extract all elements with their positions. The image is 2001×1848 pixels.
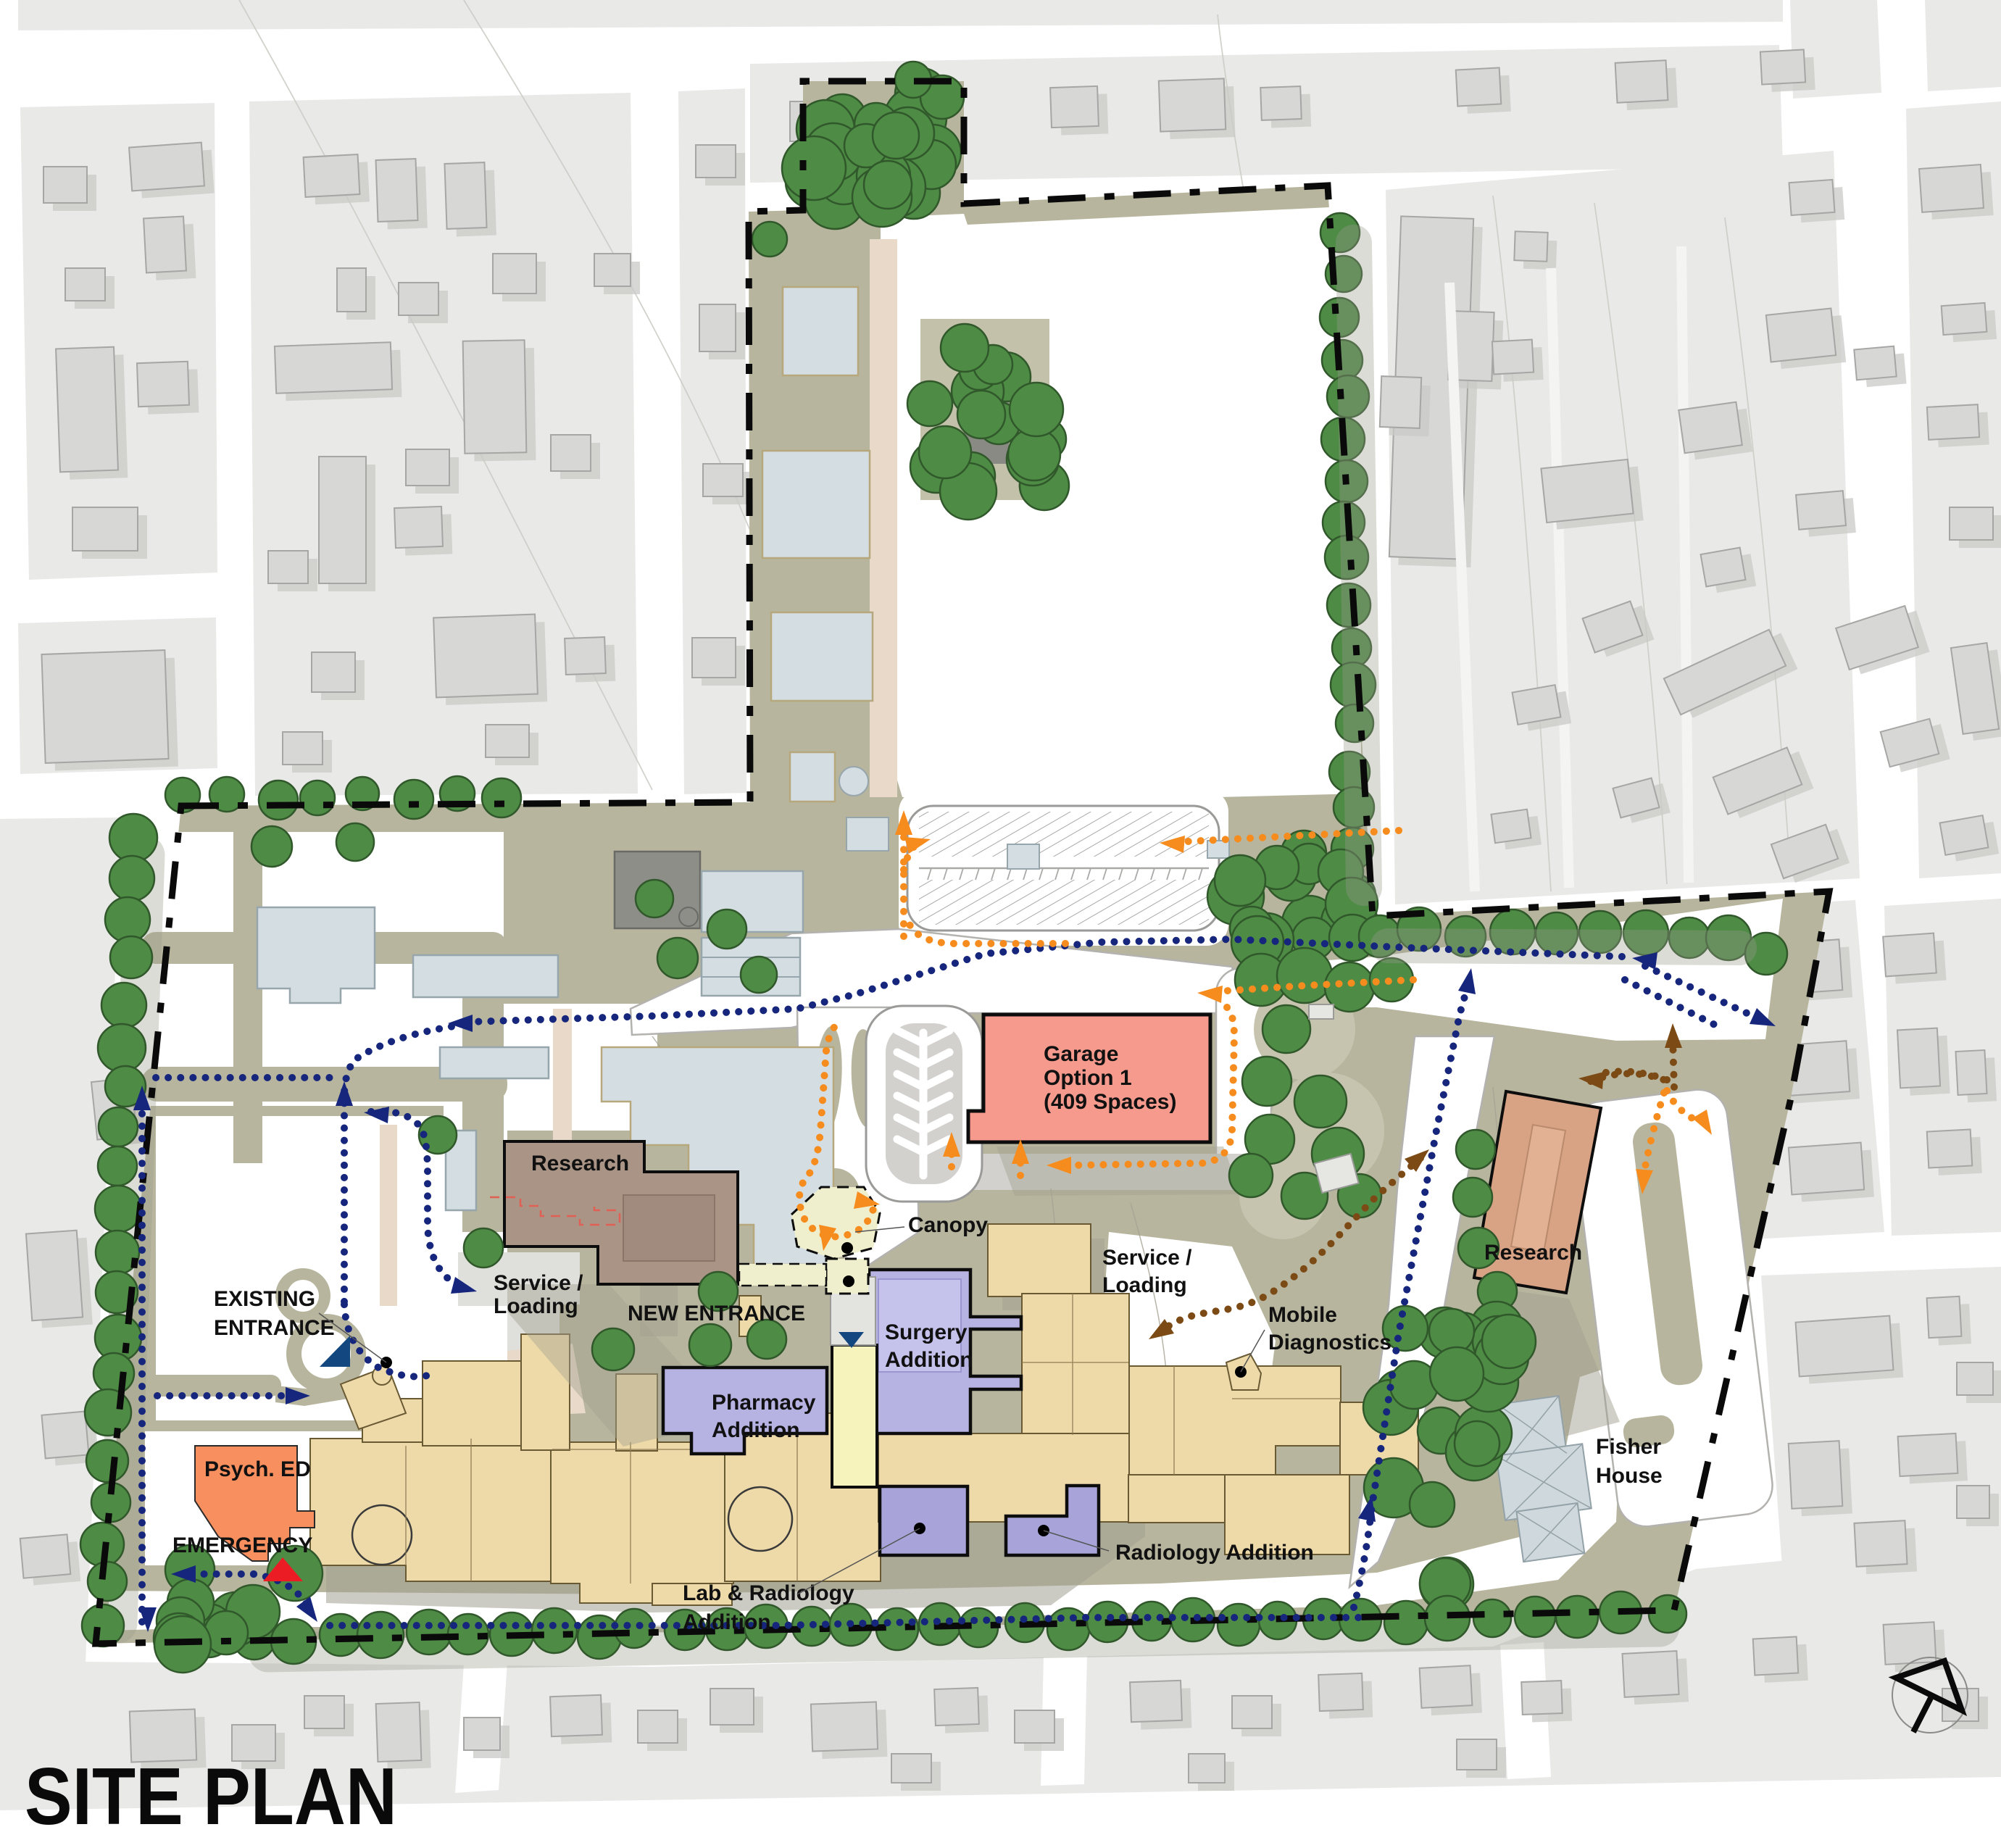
svg-text:Garage: Garage — [1044, 1042, 1118, 1066]
svg-text:Pharmacy: Pharmacy — [712, 1391, 816, 1415]
svg-text:Psych. ED: Psych. ED — [204, 1457, 311, 1481]
svg-text:EMERGENCY: EMERGENCY — [172, 1533, 312, 1557]
svg-text:Canopy: Canopy — [908, 1213, 988, 1237]
svg-text:Surgery: Surgery — [885, 1320, 968, 1344]
svg-text:NEW ENTRANCE: NEW ENTRANCE — [628, 1302, 805, 1325]
svg-text:Research: Research — [1484, 1241, 1582, 1265]
svg-text:Service /: Service / — [1102, 1246, 1192, 1270]
svg-text:SITE PLAN: SITE PLAN — [25, 1752, 397, 1841]
svg-text:Diagnostics: Diagnostics — [1268, 1331, 1391, 1354]
svg-text:Addition: Addition — [885, 1348, 973, 1372]
svg-text:Fisher: Fisher — [1596, 1435, 1661, 1459]
svg-text:Loading: Loading — [1102, 1273, 1187, 1297]
svg-text:Loading: Loading — [494, 1294, 578, 1318]
svg-text:Option 1: Option 1 — [1044, 1066, 1132, 1090]
svg-text:Service /: Service / — [494, 1271, 583, 1295]
svg-text:Radiology Addition: Radiology Addition — [1115, 1541, 1314, 1565]
svg-text:House: House — [1596, 1464, 1663, 1488]
svg-text:(409 Spaces): (409 Spaces) — [1044, 1090, 1176, 1114]
svg-text:Addition: Addition — [683, 1610, 771, 1634]
svg-text:Mobile: Mobile — [1268, 1303, 1337, 1327]
svg-text:Addition: Addition — [712, 1418, 800, 1442]
svg-text:EXISTING: EXISTING — [214, 1287, 315, 1311]
svg-text:Research: Research — [531, 1152, 629, 1175]
svg-text:ENTRANCE: ENTRANCE — [214, 1316, 335, 1340]
svg-text:Lab & Radiology: Lab & Radiology — [683, 1581, 854, 1605]
